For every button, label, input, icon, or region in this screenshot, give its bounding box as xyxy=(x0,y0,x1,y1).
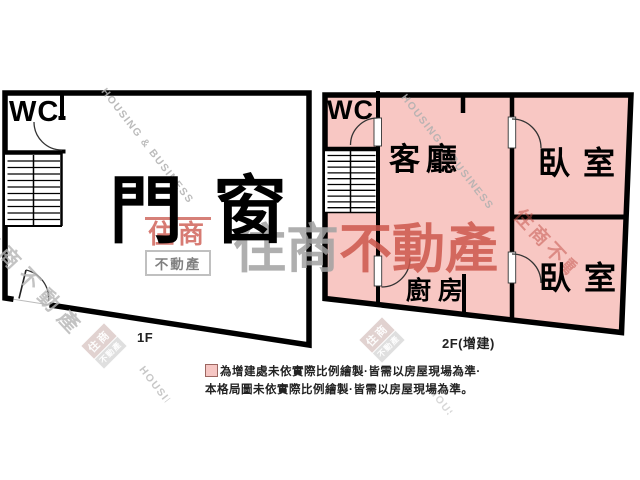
room-label-living-2f: 客廳 xyxy=(389,144,463,175)
room-label-wc-2f: WC xyxy=(327,97,374,124)
stairs-2f xyxy=(323,149,378,213)
room-label-kitchen-2f: 廚房 xyxy=(406,279,470,304)
floorplan-walls-svg xyxy=(0,0,640,480)
legend-swatch xyxy=(205,364,218,377)
stairs-1f xyxy=(3,153,62,227)
legend-line-1-text: 為增建處未依實際比例繪製·皆需以房屋現場為準· xyxy=(220,366,481,378)
room-label-wc-1f: WC xyxy=(9,98,59,127)
floor2-outline xyxy=(325,95,631,333)
legend-line-2: 本格局圖未依實際比例繪製·皆需以房屋現場為準。 xyxy=(205,381,481,399)
floorplan-canvas: HOUSING & BUSINESS HOUSING & BUSINESS HO… xyxy=(0,0,640,480)
legend: 為增建處未依實際比例繪製·皆需以房屋現場為準· 本格局圖未依實際比例繪製·皆需以… xyxy=(205,363,481,399)
room-label-bedroom-top-2f: 臥室 xyxy=(538,147,628,179)
floor-label-2f: 2F(增建) xyxy=(442,337,495,350)
room-label-bedroom-bottom-2f: 臥室 xyxy=(539,262,629,294)
legend-line-1: 為增建處未依實際比例繪製·皆需以房屋現場為準· xyxy=(205,363,481,381)
room-label-main-1f: 門窗 xyxy=(109,174,317,248)
floor-label-1f: 1F xyxy=(137,331,153,344)
